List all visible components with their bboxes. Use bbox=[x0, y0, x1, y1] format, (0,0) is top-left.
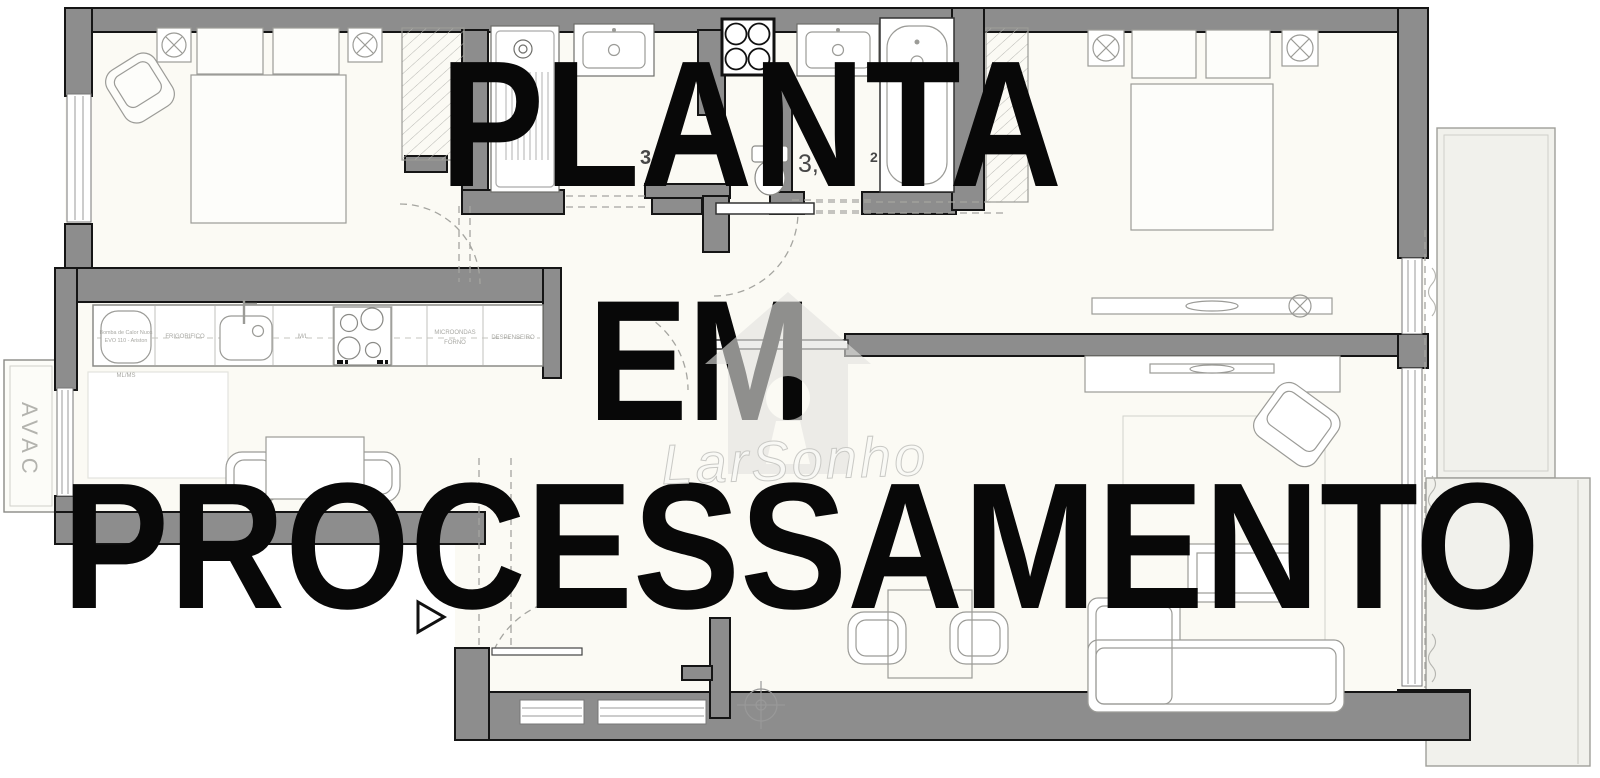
pillow bbox=[1206, 30, 1270, 78]
pillow bbox=[1132, 30, 1196, 78]
tv-console bbox=[1085, 356, 1340, 392]
pillow bbox=[197, 28, 263, 74]
hob bbox=[334, 307, 391, 365]
balcony-top-right bbox=[1437, 128, 1555, 478]
microwave-label: MICROONDAS bbox=[434, 330, 475, 336]
heat-pump-label-1: Bomba de Calor Nuos bbox=[99, 330, 152, 336]
double-bed bbox=[1131, 84, 1273, 230]
ceiling-light-icon bbox=[157, 28, 191, 62]
floor-plan-image: AVAC bbox=[0, 0, 1600, 778]
ceiling-light-icon bbox=[348, 28, 382, 62]
pantry-label: DESPENSEIRO bbox=[491, 335, 535, 341]
ceiling-light-icon bbox=[1088, 30, 1124, 66]
ceiling-light-icon bbox=[1282, 30, 1318, 66]
avac-unit: AVAC bbox=[4, 360, 58, 512]
watermark-line-1: PLANTA bbox=[440, 24, 1062, 225]
oven-label: FORNO bbox=[444, 340, 466, 346]
avac-label: AVAC bbox=[17, 402, 42, 479]
pillow bbox=[273, 28, 339, 74]
washer-label: M/L bbox=[298, 334, 309, 340]
fridge-label: FRIGORIFICO bbox=[165, 334, 205, 340]
floor-plan-svg: AVAC bbox=[0, 0, 1600, 778]
dresser bbox=[1092, 295, 1332, 317]
double-bed bbox=[191, 75, 346, 223]
entrance-door-leaf bbox=[492, 648, 582, 655]
brand-script: LarSonho bbox=[660, 424, 929, 496]
under-counter-label: ML/MS bbox=[116, 373, 135, 379]
heat-pump-label-2: EVO 110 - Ariston bbox=[105, 338, 148, 344]
heat-pump bbox=[101, 311, 151, 363]
